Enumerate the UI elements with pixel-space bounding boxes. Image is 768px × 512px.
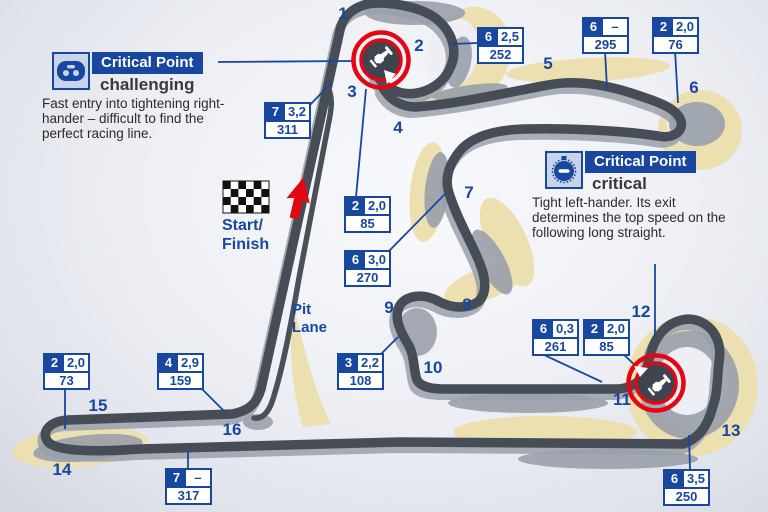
gear-value: 4 — [159, 355, 178, 371]
corner-data-box: 22,076 — [652, 17, 699, 54]
secondary-value: 0,3 — [553, 321, 577, 337]
gear-value: 6 — [665, 471, 684, 487]
secondary-value: 2,0 — [604, 321, 628, 337]
speed-value: 73 — [45, 371, 88, 388]
secondary-value: 2,0 — [64, 355, 88, 371]
corner-data-box: 63,5250 — [663, 469, 710, 506]
gear-value: 6 — [479, 29, 498, 45]
pit-lane-label: Pit Lane — [292, 301, 327, 337]
gear-value: 2 — [585, 321, 604, 337]
steering-wheel-icon — [52, 52, 90, 90]
corner-label-2: 2 — [414, 36, 423, 56]
corner-data-box: 7–317 — [165, 468, 212, 505]
corner-label-14: 14 — [53, 460, 72, 480]
circuit-infographic: Critical Point challenging Fast entry in… — [0, 0, 768, 512]
secondary-value: 2,9 — [178, 355, 202, 371]
corner-label-9: 9 — [384, 298, 393, 318]
corner-label-10: 10 — [424, 358, 443, 378]
corner-data-box: 32,2108 — [337, 353, 384, 390]
critical-point-marker-1 — [354, 33, 409, 88]
secondary-value: 3,5 — [684, 471, 708, 487]
critical-point-description: Fast entry into tightening right-hander … — [42, 96, 242, 141]
speed-value: 76 — [654, 35, 697, 52]
speed-value: 159 — [159, 371, 202, 388]
corner-data-box: 22,073 — [43, 353, 90, 390]
gear-value: 3 — [339, 355, 358, 371]
secondary-value: 2,5 — [498, 29, 522, 45]
gear-value: 7 — [167, 470, 186, 486]
corner-label-11: 11 — [613, 390, 631, 410]
critical-point-marker-2 — [629, 356, 684, 411]
secondary-value: – — [603, 19, 627, 35]
critical-point-title: Critical Point — [92, 52, 203, 74]
corner-label-8: 8 — [462, 295, 471, 315]
critical-point-severity: challenging — [100, 75, 194, 95]
start-finish-label: Start/ Finish — [222, 216, 269, 254]
secondary-value: – — [186, 470, 210, 486]
speed-value: 252 — [479, 45, 522, 62]
critical-point-description: Tight left-hander. Its exit determines t… — [532, 195, 744, 240]
corner-label-4: 4 — [393, 118, 402, 138]
gear-value: 2 — [346, 198, 365, 214]
speed-value: 295 — [584, 35, 627, 52]
gear-value: 6 — [534, 321, 553, 337]
corner-data-box: 22,085 — [344, 196, 391, 233]
corner-label-5: 5 — [543, 54, 552, 74]
corner-label-1: 1 — [338, 4, 347, 24]
speed-value: 317 — [167, 486, 210, 503]
speed-value: 85 — [585, 337, 628, 354]
speed-value: 270 — [346, 268, 389, 285]
gear-value: 6 — [584, 19, 603, 35]
corner-data-box: 73,2311 — [264, 102, 311, 139]
corner-label-15: 15 — [89, 396, 108, 416]
corner-data-box: 62,5252 — [477, 27, 524, 64]
speed-value: 311 — [266, 120, 309, 137]
corner-data-box: 22,085 — [583, 319, 630, 356]
corner-label-3: 3 — [347, 82, 356, 102]
corner-label-12: 12 — [632, 302, 651, 322]
speed-value: 108 — [339, 371, 382, 388]
corner-label-7: 7 — [464, 183, 473, 203]
gear-value: 7 — [266, 104, 285, 120]
checkered-flag-icon — [223, 181, 269, 213]
corner-data-box: 6–295 — [582, 17, 629, 54]
corner-label-13: 13 — [722, 421, 741, 441]
secondary-value: 2,2 — [358, 355, 382, 371]
corner-label-6: 6 — [689, 78, 698, 98]
gear-value: 2 — [654, 19, 673, 35]
secondary-value: 2,0 — [365, 198, 389, 214]
gear-value: 6 — [346, 252, 365, 268]
corner-data-box: 63,0270 — [344, 250, 391, 287]
stopwatch-icon — [545, 151, 583, 189]
speed-value: 261 — [534, 337, 577, 354]
speed-value: 85 — [346, 214, 389, 231]
speed-value: 250 — [665, 487, 708, 504]
corner-data-box: 42,9159 — [157, 353, 204, 390]
critical-point-title: Critical Point — [585, 151, 696, 173]
secondary-value: 2,0 — [673, 19, 697, 35]
corner-label-16: 16 — [223, 420, 242, 440]
gear-value: 2 — [45, 355, 64, 371]
secondary-value: 3,0 — [365, 252, 389, 268]
critical-point-severity: critical — [592, 174, 647, 194]
corner-data-box: 60,3261 — [532, 319, 579, 356]
secondary-value: 3,2 — [285, 104, 309, 120]
